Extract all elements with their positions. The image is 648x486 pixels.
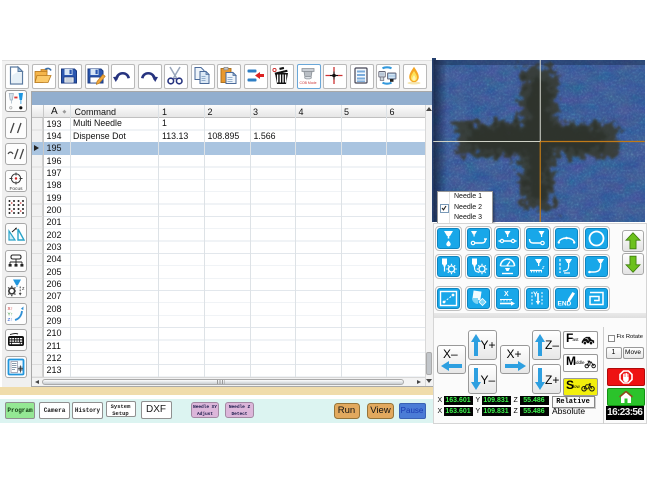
svg-text:z: z — [22, 286, 25, 292]
svg-text:Focus: Focus — [9, 186, 23, 191]
svg-text:END: END — [558, 300, 572, 307]
svg-text:X↑: X↑ — [8, 306, 13, 311]
svg-text:Y↑: Y↑ — [8, 311, 13, 316]
svg-text:Z↑: Z↑ — [8, 317, 13, 322]
svg-text:X: X — [504, 291, 509, 298]
svg-text:COB Mode: COB Mode — [299, 80, 317, 85]
